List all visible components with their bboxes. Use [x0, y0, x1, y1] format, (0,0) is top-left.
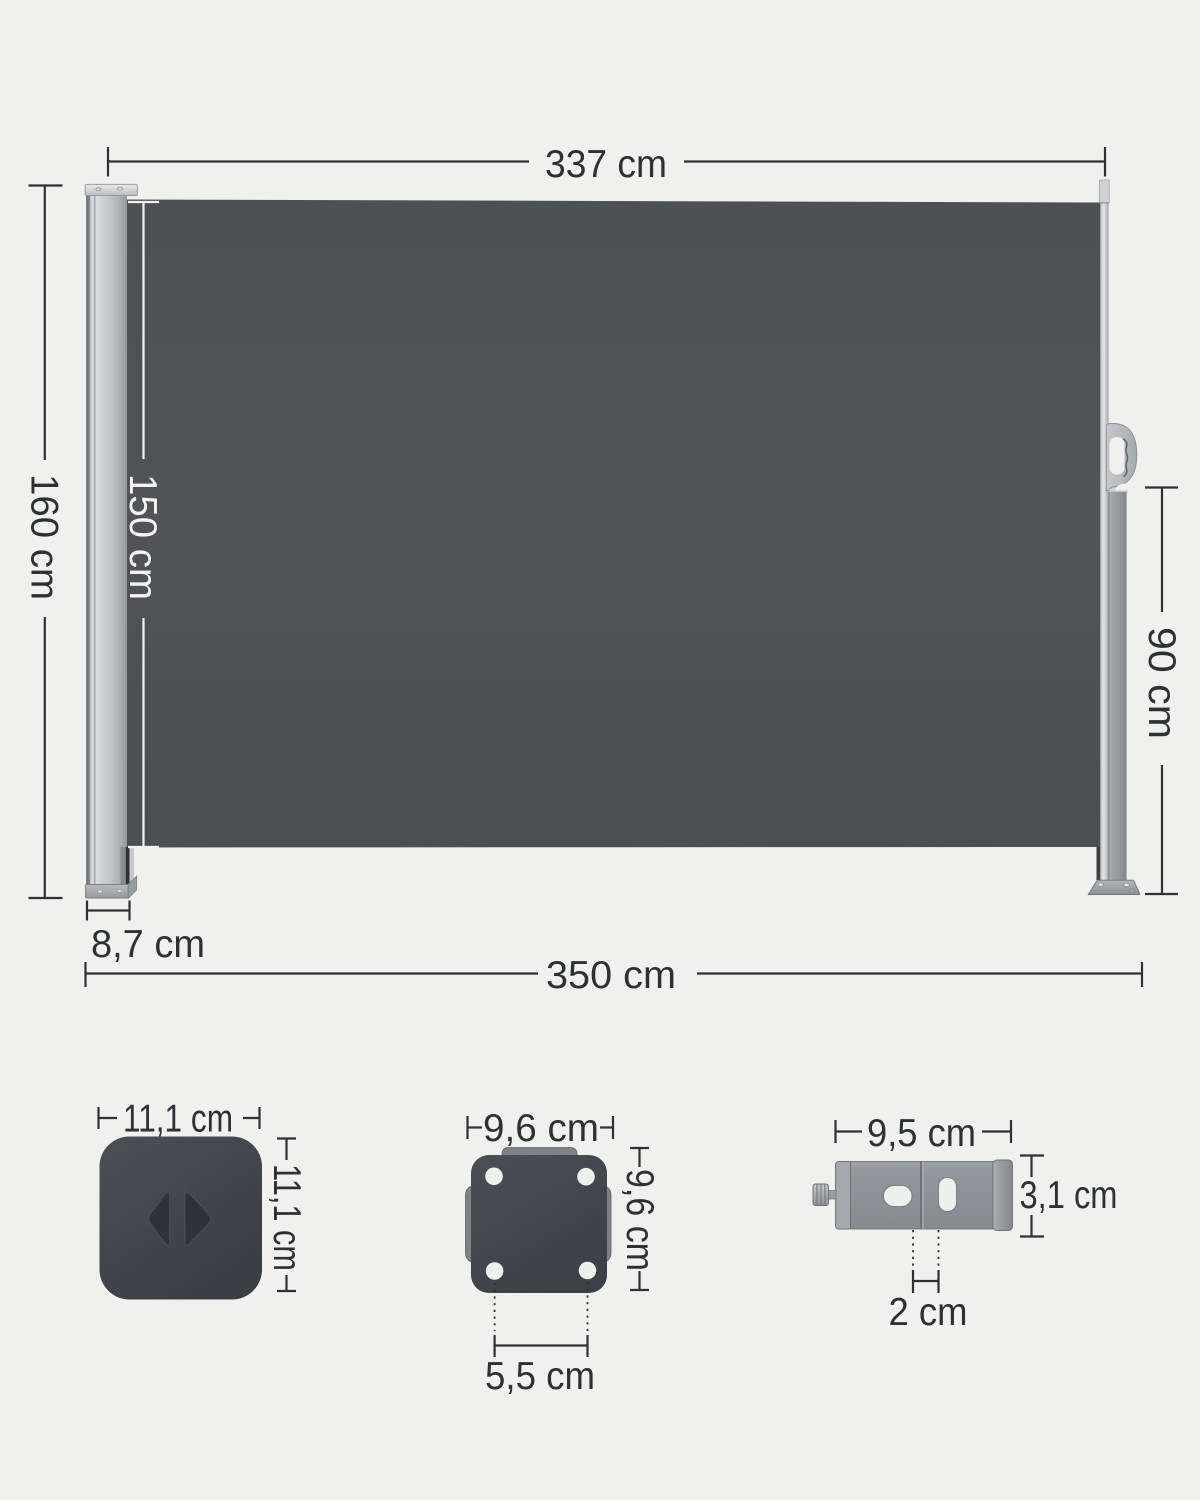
svg-text:9,6 cm: 9,6 cm [483, 1107, 599, 1150]
svg-text:90 cm: 90 cm [1140, 627, 1183, 739]
svg-text:8,7 cm: 8,7 cm [91, 923, 205, 966]
svg-text:2 cm: 2 cm [889, 1291, 968, 1334]
svg-text:150 cm: 150 cm [121, 474, 164, 600]
svg-text:5,5 cm: 5,5 cm [485, 1355, 595, 1398]
svg-text:350 cm: 350 cm [546, 954, 676, 997]
svg-text:11,1 cm: 11,1 cm [123, 1098, 233, 1141]
svg-text:11,1 cm: 11,1 cm [265, 1164, 308, 1271]
svg-text:9,5 cm: 9,5 cm [867, 1112, 976, 1155]
svg-text:3,1 cm: 3,1 cm [1020, 1174, 1118, 1217]
svg-text:9,6 cm: 9,6 cm [618, 1169, 661, 1271]
svg-text:160 cm: 160 cm [23, 474, 66, 600]
svg-text:337 cm: 337 cm [545, 143, 667, 186]
